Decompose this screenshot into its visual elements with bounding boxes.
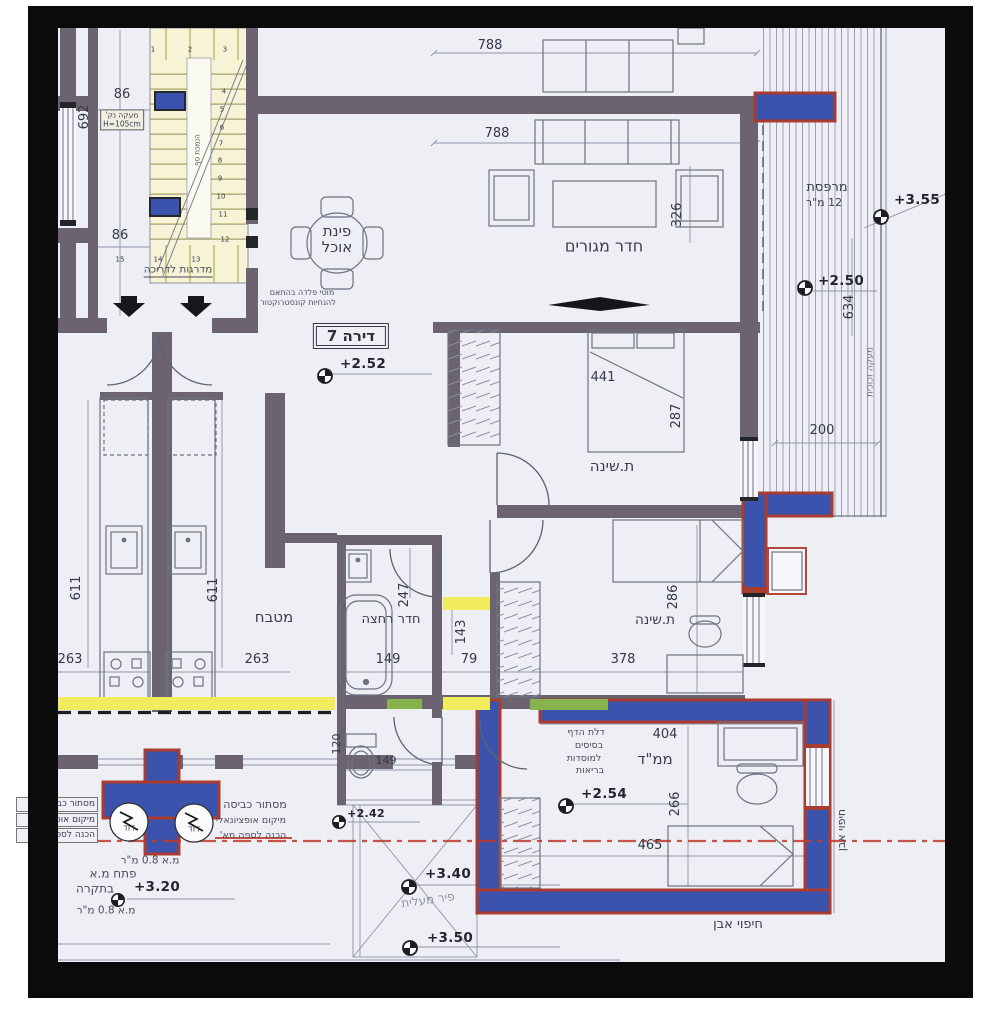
dim-200: 200 (810, 424, 835, 438)
note-stairs: מדרגות לדריכה (144, 264, 213, 277)
dim-465: 465 (638, 839, 663, 853)
level-shaft-low: +3.50 (427, 931, 473, 945)
dim-263-right: 263 (245, 653, 270, 667)
desk-bedroom2 (667, 655, 743, 693)
dim-286: 286 (667, 585, 681, 610)
sofa-living (535, 120, 679, 164)
stair-num-1: 1 (151, 46, 155, 53)
bed-bedroom2 (613, 520, 743, 582)
column-unit (768, 548, 806, 594)
note-ceiling-2: פתח מ.א (89, 868, 136, 881)
stair-num-5: 5 (220, 106, 224, 113)
dim-86-bottom: 86 (112, 229, 129, 243)
note-steel-1: מוטי פלדה בהתאם (270, 289, 335, 297)
stair-num-3: 3 (223, 46, 227, 53)
bed-bedroom1 (588, 330, 684, 452)
frame-bottom (28, 962, 973, 998)
balcony-area: 12 מ"ר (806, 197, 842, 209)
bathtub (340, 595, 392, 695)
note-stone-bottom: חיפוי אבן (713, 918, 763, 932)
dim-263-left: 263 (58, 653, 83, 667)
room-label-dining-2: אוכל (322, 240, 353, 256)
stair-num-11: 11 (219, 211, 228, 218)
label-boiler-1: דוד (123, 824, 135, 833)
note-laundry: מסתור כביסה (223, 799, 287, 811)
floor-plan-page: דירה 7 פינת אוכל חדר מגורים מרפסת 12 מ"ר… (0, 0, 989, 1024)
room-label-kitchen: מטבח (255, 610, 293, 626)
level-ceiling: +3.20 (134, 880, 180, 894)
stair-num-9: 9 (218, 175, 222, 182)
dim-788-top: 788 (478, 39, 503, 53)
dim-634: 634 (843, 295, 857, 320)
note-railing-box: מעקה נק' H=105cm (100, 109, 144, 130)
note-ceiling-1: מ.א 0.8 מ"ר (121, 855, 180, 866)
level-safe-room: +2.54 (581, 787, 627, 801)
note-mamad-2: בסיסים (575, 741, 603, 751)
dim-149-wc: 149 (376, 755, 397, 767)
stair-num-2: 2 (188, 46, 192, 53)
apartment-number: דירה 7 (316, 326, 386, 346)
frame-right (945, 6, 973, 998)
note-laundry-prep: הכנה לספה מא' (220, 831, 286, 841)
stair-num-8: 8 (218, 157, 222, 164)
dim-266: 266 (669, 792, 683, 817)
bathroom-sink (345, 550, 371, 582)
apartment-number-box: דירה 7 (313, 323, 389, 349)
entrance-arrows (113, 296, 212, 317)
note-mamad-1: דלת הדף (567, 728, 604, 738)
note-mamad-3: למוסדות (567, 754, 602, 764)
frame-top (28, 6, 973, 28)
wall-red-cap (743, 587, 766, 594)
note-laundry-optional: מיקום אופציונאלי (216, 816, 286, 826)
note-ceiling-4: מ.א 0.8 מ"ר (77, 905, 136, 916)
dim-86-top: 86 (114, 88, 131, 102)
stair-num-15: 15 (116, 256, 125, 263)
coffee-table (553, 181, 656, 227)
stair-num-6: 6 (220, 124, 224, 131)
stair-num-13: 13 (192, 256, 201, 263)
stair-num-7: 7 (219, 140, 223, 147)
dim-788-living: 788 (485, 127, 510, 141)
level-balcony-top: +3.55 (894, 193, 940, 207)
dim-149-bath: 149 (376, 653, 401, 667)
room-label-balcony: מרפסת (806, 181, 847, 195)
level-shaft: +3.40 (425, 867, 471, 881)
note-stone-right: חיפוי אבן (836, 809, 848, 851)
dim-247: 247 (398, 583, 412, 608)
closet-mamad (500, 798, 540, 888)
stair-num-12: 12 (221, 236, 230, 243)
level-balcony: +2.50 (818, 274, 864, 288)
room-label-living: חדר מגורים (565, 239, 643, 256)
sofa-upper (543, 40, 673, 92)
stair-num-4: 4 (222, 88, 226, 95)
floor-plan-drawing (0, 0, 989, 1024)
dim-143: 143 (455, 620, 469, 645)
tv-unit (548, 297, 650, 311)
stair-num-10: 10 (217, 193, 226, 200)
armchair-left (489, 170, 534, 226)
level-corridor: +2.42 (347, 808, 385, 820)
chair-bedroom2 (689, 616, 721, 647)
chair-top-right (678, 28, 704, 44)
note-steel-2: להנחיות קונסטרוקטור (260, 299, 336, 307)
note-glass-railing: מעקה זכוכית (866, 347, 875, 397)
room-label-safe-room: ממ"ד (637, 752, 672, 768)
label-boiler-2: דוד (188, 825, 200, 834)
desk-mamad (718, 722, 803, 766)
level-dining: +2.52 (340, 357, 386, 371)
note-ceiling-3: בתקרה (76, 883, 114, 896)
dim-79: 79 (461, 653, 478, 667)
stair-num-14: 14 (154, 256, 163, 263)
dim-326: 326 (671, 203, 685, 228)
closet-bedroom1 (448, 330, 500, 445)
dim-611-right: 611 (207, 578, 221, 603)
frame-left (28, 6, 58, 998)
dim-692: 692 (78, 105, 92, 130)
room-label-bathroom: חדר רחצה (361, 613, 420, 627)
dim-611-left: 611 (70, 576, 84, 601)
dim-404: 404 (653, 728, 678, 742)
dim-287: 287 (670, 404, 684, 429)
note-stair-side: הנמכת סף (194, 134, 201, 166)
room-label-bedroom2: ת.שינה (635, 613, 675, 627)
note-mamad-4: בריאות (576, 766, 604, 776)
dim-441: 441 (591, 371, 616, 385)
chair-mamad (737, 764, 777, 804)
note-railing-height: H=105cm (103, 120, 141, 129)
room-label-bedroom1: ת.שינה (590, 459, 634, 475)
closet-bedroom2 (497, 582, 540, 697)
dim-120-wc: 120 (331, 734, 343, 755)
dim-378: 378 (611, 653, 636, 667)
